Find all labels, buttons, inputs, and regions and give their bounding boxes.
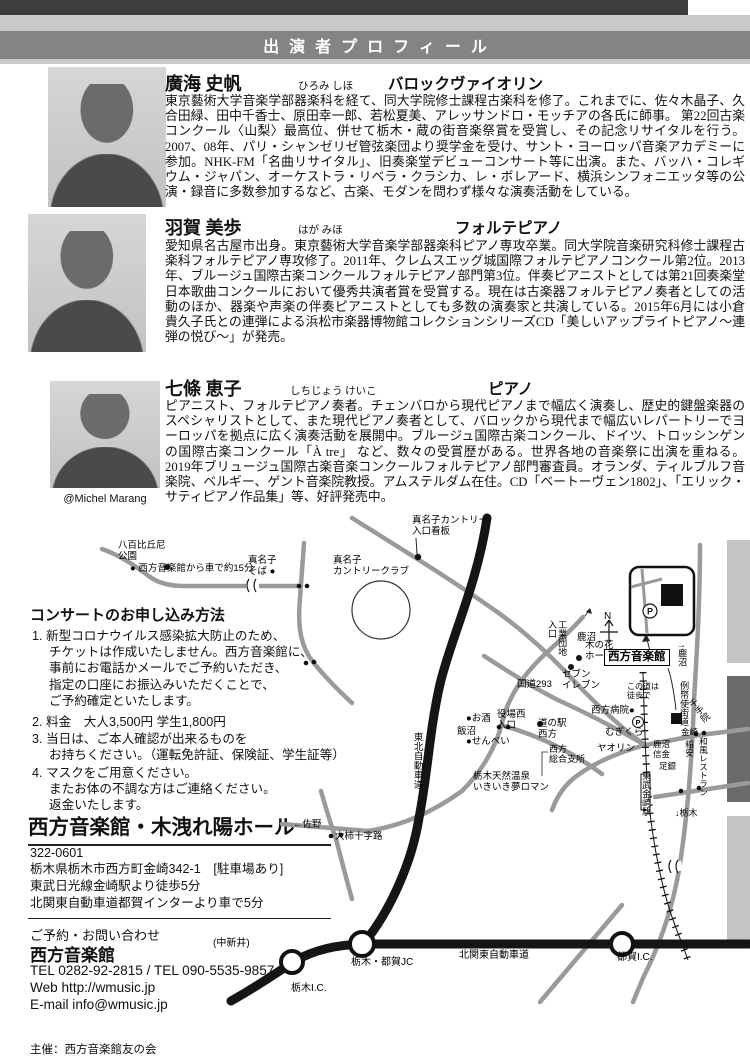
portrait-body [52,447,158,488]
map-label-tsuga-ic: 都賀I.C. [617,952,653,963]
map-label-senjuin: 千手院 [687,697,712,724]
map-label-seven-eleven: セブン イレブン [562,670,600,691]
map-label-ogaki-crossing: 大柿十字路 [335,832,383,843]
portrait-silhouette [76,394,133,443]
divider-line [28,918,331,919]
performer-instrument: フォルテピアノ [455,216,562,238]
svg-text:P: P [647,607,653,617]
map-label-hospital: 西方病院● [591,706,635,717]
map-label-restaurant: 和風レストラン [698,737,708,797]
portrait-silhouette [56,231,117,294]
performer-bio: 愛知県名古屋市出身。東京藝術大学音楽学部器楽科ピアノ専攻卒業。同大学院音楽研究科… [165,239,745,345]
portrait-silhouette [76,84,137,148]
organizer: 主催：西方音楽館友の会 [30,1041,157,1057]
performer-photo-haga [28,214,146,352]
performer-bio: 東京藝術大学音楽学部器楽科を経て、同大学院修士課程古楽科を修了。これまでに、佐々… [165,94,745,200]
country-club-circle [352,581,410,639]
contact-tel: TEL 0282-92-2815 / TEL 090-5535-9857 [30,962,274,979]
map-label-venue: 西方音楽館 [604,649,670,666]
edge-bar-light-bottom [727,816,750,940]
map-label-michinoeki: 道の駅 西方 [538,719,567,740]
map-label-tochigi-arrow: ↓栃木 [675,808,698,818]
map-label-north: N [604,611,611,622]
flyer-page: 出演者プロフィール 廣海 史帆 ひろみ しほ バロックヴァイオリン 東京藝術大学… [0,0,750,1063]
map-label-walk-road: この道は 徒歩で [627,683,659,701]
leader-lines [416,538,676,776]
page-title: 出演者プロフィール [253,33,497,57]
map-label-tsuga-jc: 栃木・都賀JC [351,957,413,968]
map-label-osake: ●お酒 [466,714,491,725]
performer-bio: ピアニスト、フォルテピアノ奏者。チェンバロから現代ピアノまで幅広く演奏し、歴史的… [165,399,745,505]
application-item-3: 3. 当日は、ご本人確認が出来るものを お持ちください。（運転免許証、保険証、学… [32,731,359,763]
performer-furigana: はが みほ [298,222,343,237]
map-label-manago-soba: 真名子 そば ● [248,556,277,577]
performer-name: 廣海 史帆 [165,70,242,96]
venue-postal: 322-0601 [30,845,83,862]
map-label-shisho: 西方 総合支所 [549,744,585,764]
map-label-kogyodanchi: 工業団地 入口 [547,620,567,656]
map-label-kanasaki: 金崎 [681,728,698,738]
map-label-iinuma: 飯沼 [457,727,476,738]
map-label-route-293: 国道293 [517,680,552,691]
application-title: コンサートのお申し込み方法 [30,604,225,625]
venue-address: 栃木県栃木市西方町金崎342-1 [駐車場あり] 東武日光線金崎駅より徒歩5分 … [30,861,340,912]
performer-name: 七條 恵子 [165,375,242,401]
map-label-bank: 足銀 [659,762,676,772]
map-label-onsen: 栃木天然温泉 いきいき夢ロマン [473,772,549,793]
map-label-kitakanto-expwy: 北関東自動車道 [459,950,529,961]
performer-furigana: しちじょう けいこ [290,383,377,398]
header-title-band: 出演者プロフィール [0,31,750,59]
station-rect [641,774,650,810]
interchange-circles [281,932,633,973]
parking-inset-box: P [630,567,694,635]
performer-photo-hiromi [48,67,166,207]
contact-web-email: Web http://wmusic.jp E-mail info@wmusic.… [30,979,168,1013]
venue-name: 西方音楽館・木洩れ陽ホール [28,810,331,846]
application-item-4: 4. マスクをご用意ください。 またお体の不調な方はご連絡ください。 返金いたし… [32,765,349,814]
map-label-mugikura: むぎくら [605,728,643,739]
map-label-senbei: ●せんべい [466,737,510,748]
portrait-body [30,300,143,352]
performer-instrument: バロックヴァイオリン [388,72,543,94]
top-dark-strip [0,0,688,15]
crossing-dots [297,584,707,839]
performer-name: 羽賀 美歩 [165,214,242,240]
edge-bar-light-top [727,540,750,663]
map-label-park: 八百比丘尼 公園 [118,541,166,562]
map-label-yakuba-nishi: 役場西 入口 [497,710,526,731]
portrait-body [50,154,163,207]
map-label-tohoku-expwy: 東北自動車道 [411,732,422,789]
north-compass-icon [600,620,618,644]
map-label-tochigi-ic: 栃木I.C. [291,983,327,994]
map-label-nakaarai: (中新井) [213,938,250,949]
map-label-inayasu: 稲安 [684,740,694,757]
application-item-1: 1. 新型コロナウイルス感染拡大防止のため、 チケットは作成いたしません。西方音… [32,628,349,709]
map-label-konohana-home: 木の花 ホーム [585,641,614,662]
map-label-country-sign: 真名子カントリー 入口看板 [412,516,488,537]
map-label-kanuma-top: 鹿沼 [577,633,596,644]
map-label-kanuma-arrow: ↑鹿沼 [677,644,687,667]
performer-furigana: ひろみ しほ [298,78,353,93]
map-label-shinkin: 鹿沼 信金 [653,740,670,759]
map-label-kanasaki-station: 東武金崎駅 [641,771,651,816]
map-label-reiheishi-kaido: 例幣使街道 [679,681,689,726]
map-label-yaorin: ヤオリン [597,744,635,755]
performer-photo-shichijo [50,381,160,488]
map-label-drive-time: ● 西方音楽館から車で約15分 [130,564,253,575]
inset-arrowhead [642,634,650,642]
svg-text:P: P [635,718,640,727]
application-item-2: 2. 料金 大人3,500円 学生1,800円 [32,714,349,730]
parking-small-icon: P [633,717,644,728]
map-label-country-club: 真名子 カントリークラブ [333,556,409,577]
photo-credit: @Michel Marang [40,493,170,505]
venue-square [671,713,682,724]
performer-instrument: ピアノ [488,377,533,399]
kanuma-arrowhead [586,608,592,614]
railway-line [641,672,688,960]
edge-bar-dark [727,676,750,802]
